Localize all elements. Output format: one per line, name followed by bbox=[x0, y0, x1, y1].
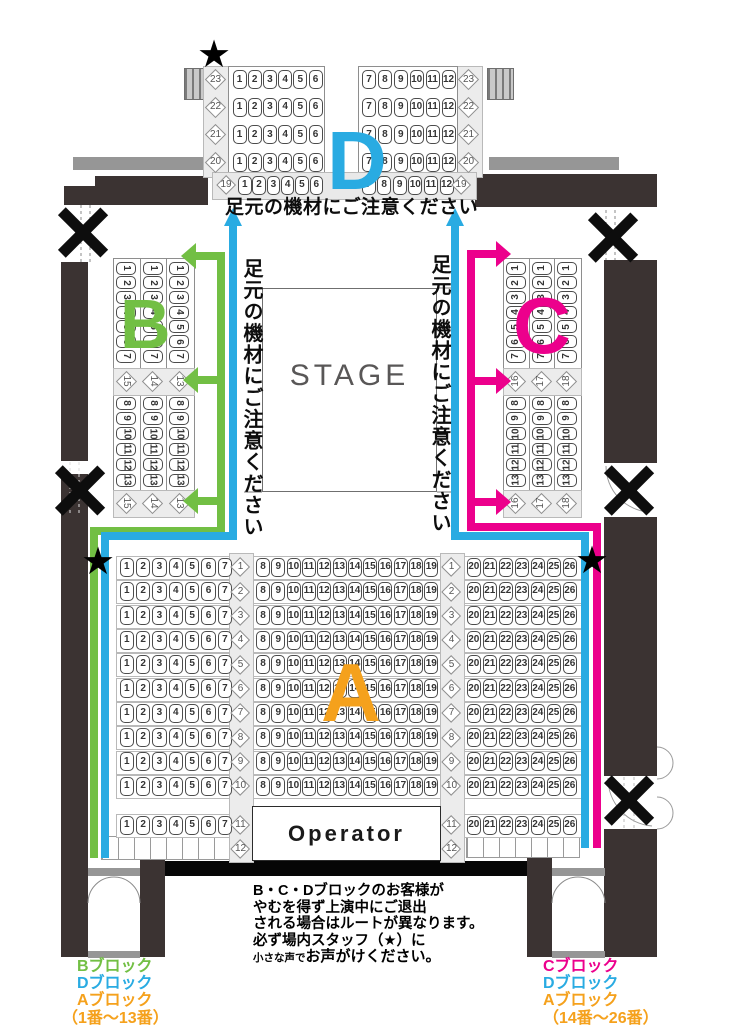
legend-item: （1番～13番） bbox=[62, 1010, 169, 1027]
notice-small-text: 小さな声で bbox=[253, 952, 306, 964]
notice-line: やむを得ず上演中にご退出 bbox=[253, 900, 484, 917]
block-a-label: A bbox=[321, 651, 381, 734]
route-c-magenta bbox=[467, 523, 601, 531]
warning-text-right: 足元の機材にご注意ください bbox=[428, 254, 450, 544]
arrow-into-b-block bbox=[183, 367, 198, 393]
legend-left-exit: BブロックDブロックAブロック（1番～13番） bbox=[62, 958, 169, 1027]
legend-item: Aブロック bbox=[543, 992, 659, 1009]
route-b-green bbox=[217, 252, 225, 535]
notice-line: 小さな声でお声がけください。 bbox=[253, 949, 484, 967]
closed-door-x-icon bbox=[603, 464, 655, 516]
block-d-label: D bbox=[327, 119, 387, 202]
route-b-green bbox=[196, 376, 225, 384]
closed-door-x-icon bbox=[587, 211, 639, 263]
route-c-magenta bbox=[467, 250, 475, 531]
closed-door-x-icon bbox=[54, 464, 106, 516]
route-d-cyan bbox=[101, 532, 237, 540]
arrow-into-b-block bbox=[183, 488, 198, 514]
route-b-green bbox=[194, 252, 225, 260]
notice-rest-text: お声がけください。 bbox=[306, 948, 441, 965]
arrow-into-c-block bbox=[496, 368, 511, 394]
notice-line: される場合はルートが異なります。 bbox=[253, 916, 484, 933]
legend-item: （14番～26番） bbox=[543, 1010, 659, 1027]
route-d-cyan bbox=[451, 226, 459, 540]
route-d-cyan bbox=[451, 532, 589, 540]
closed-door-x-icon bbox=[57, 206, 109, 258]
arrow-into-b-block bbox=[181, 243, 196, 269]
legend-item: Bブロック bbox=[62, 958, 169, 975]
legend-item: Aブロック bbox=[62, 992, 169, 1009]
arrow-into-c-block bbox=[496, 241, 511, 267]
warning-text-left: 足元の機材にご注意ください bbox=[240, 258, 262, 548]
legend-item: Cブロック bbox=[543, 958, 659, 975]
block-c-label: C bbox=[513, 286, 571, 366]
closed-door-x-icon bbox=[603, 774, 655, 826]
notice-line: 必ず場内スタッフ（★）に bbox=[253, 933, 484, 950]
staff-position-star-icon: ★ bbox=[81, 543, 115, 581]
staff-position-star-icon: ★ bbox=[575, 542, 609, 580]
legend-item: Dブロック bbox=[62, 975, 169, 992]
route-b-green bbox=[196, 497, 225, 505]
theater-seating-chart: 足元の機材にご注意ください 足元の機材にご注意ください 足元の機材にご注意くださ… bbox=[0, 0, 729, 1032]
staff-position-star-icon: ★ bbox=[197, 36, 231, 74]
arrow-into-c-block bbox=[496, 489, 511, 515]
route-d-cyan bbox=[229, 226, 237, 540]
exit-notice-text: B・C・Dブロックのお客様が やむを得ず上演中にご退出 される場合はルートが異な… bbox=[253, 883, 484, 967]
legend-item: Dブロック bbox=[543, 975, 659, 992]
notice-line: B・C・Dブロックのお客様が bbox=[253, 883, 484, 900]
block-b-label: B bbox=[120, 289, 171, 359]
legend-right-exit: CブロックDブロックAブロック（14番～26番） bbox=[543, 958, 659, 1027]
